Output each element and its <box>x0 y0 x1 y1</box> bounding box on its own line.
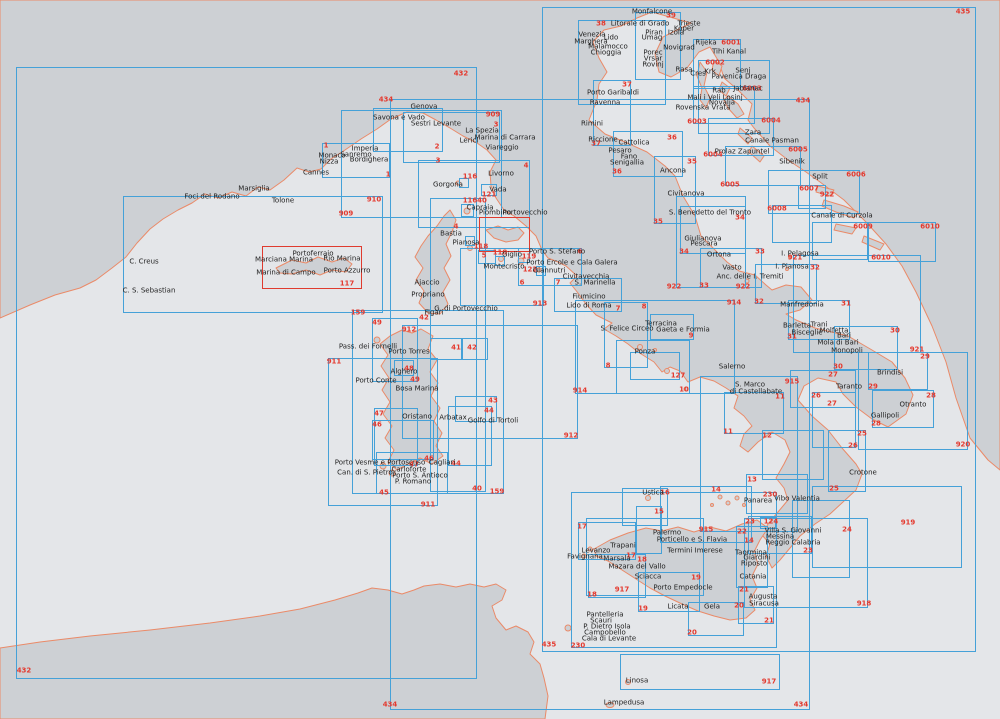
chart-number-117[interactable]: 117 <box>340 281 355 288</box>
place-label: Izola <box>668 30 684 37</box>
chart-number-6008[interactable]: 6008 <box>767 206 786 213</box>
chart-number-1[interactable]: 1 <box>386 172 391 179</box>
chart-number-21[interactable]: 21 <box>764 618 774 625</box>
chart-number-19[interactable]: 19 <box>691 575 701 582</box>
place-label: Rovenska Vrata <box>676 105 731 112</box>
place-label: Zara <box>745 130 761 137</box>
chart-number-915[interactable]: 915 <box>699 527 714 534</box>
place-label: Licata <box>667 604 688 611</box>
place-label: Sibenik <box>779 159 805 166</box>
chart-number-32[interactable]: 32 <box>810 265 820 272</box>
place-label: Sestri Levante <box>411 121 461 128</box>
chart-number-159[interactable]: 159 <box>351 310 366 317</box>
chart-number-42[interactable]: 42 <box>467 345 477 352</box>
place-label: Capraia <box>466 205 493 212</box>
place-label: Ravenna <box>590 100 621 107</box>
place-label: Marsala <box>603 556 630 563</box>
chart-number-18[interactable]: 18 <box>587 592 597 599</box>
place-label: Cattolica <box>619 140 650 147</box>
chart-number-434[interactable]: 434 <box>796 98 811 105</box>
chart-number-911[interactable]: 911 <box>421 502 436 509</box>
place-label: Bordighera <box>350 157 389 164</box>
chart-number-24[interactable]: 24 <box>842 527 852 534</box>
place-label: Trapani <box>610 543 636 550</box>
place-label: Catania <box>740 574 767 581</box>
place-label: Porto Conte <box>355 378 396 385</box>
place-label: Litorale di Grado <box>611 21 669 28</box>
place-label: Bastia <box>440 231 462 238</box>
chart-number-1[interactable]: 1 <box>324 143 329 150</box>
place-label: Vada <box>489 187 506 194</box>
place-label: Ajaccio <box>415 280 440 287</box>
chart-number-230[interactable]: 230 <box>571 643 586 650</box>
place-label: Ortona <box>707 252 731 259</box>
chart-number-914[interactable]: 914 <box>727 300 742 307</box>
chart-number-30[interactable]: 30 <box>890 328 900 335</box>
chart-number-33[interactable]: 33 <box>755 249 765 256</box>
place-label: Panarea <box>744 498 772 505</box>
place-label: Lampedusa <box>604 700 645 707</box>
place-label: Genova <box>411 104 438 111</box>
place-label: Golfo di Tortoli <box>468 418 518 425</box>
chart-number-434[interactable]: 434 <box>794 702 809 709</box>
chart-number-25[interactable]: 25 <box>857 431 867 438</box>
place-label: Rovinj <box>642 62 663 69</box>
place-label: Vasto <box>722 265 741 272</box>
chart-number-14[interactable]: 14 <box>711 487 721 494</box>
place-label: Giannutri <box>533 268 566 275</box>
place-label: Mazara del Vallo <box>608 564 665 571</box>
chart-number-8[interactable]: 8 <box>642 304 647 311</box>
place-label: Gallipoli <box>871 413 899 420</box>
chart-number-912[interactable]: 912 <box>402 327 417 334</box>
chart-number-30[interactable]: 30 <box>833 364 843 371</box>
place-label: S. Felice Circeo <box>600 326 653 333</box>
chart-index-map: 4324324344344344344354359099099109119119… <box>0 0 1000 719</box>
chart-number-922[interactable]: 922 <box>820 192 835 199</box>
place-label: Porto Torres <box>388 349 429 356</box>
place-label: S. Benedetto del Tronto <box>669 210 751 217</box>
place-label: Porto Ercole e Cala Galera <box>526 260 617 267</box>
place-label: Gela <box>704 604 720 611</box>
place-label: Porto Garibaldi <box>587 90 639 97</box>
chart-number-32[interactable]: 32 <box>754 299 764 306</box>
chart-number-41[interactable]: 41 <box>451 345 461 352</box>
chart-number-26[interactable]: 26 <box>848 443 858 450</box>
chart-number-124[interactable]: 124 <box>764 519 779 526</box>
chart-number-28[interactable]: 28 <box>926 393 936 400</box>
place-label: Novigrad <box>663 45 695 52</box>
chart-number-917[interactable]: 917 <box>615 587 630 594</box>
place-label: Oristano <box>402 414 432 421</box>
place-label: Montecristo <box>483 264 524 271</box>
chart-number-6010[interactable]: 6010 <box>920 224 939 231</box>
chart-number-26[interactable]: 26 <box>811 393 821 400</box>
chart-number-34[interactable]: 34 <box>679 249 689 256</box>
place-label: Porto Empedocle <box>653 585 712 592</box>
place-label: Lido di Roma <box>566 303 611 310</box>
place-label: Viareggio <box>485 145 518 152</box>
place-label: Tihi Kanal <box>712 49 746 56</box>
chart-number-21[interactable]: 21 <box>739 587 749 594</box>
place-label: Monopoli <box>831 348 863 355</box>
place-label: Linosa <box>626 678 649 685</box>
place-label: Taranto <box>836 384 862 391</box>
place-label: Bosa Marina <box>395 386 438 393</box>
place-label: Porto Azzurro <box>324 268 371 275</box>
chart-overlay-layer: 4324324344344344344354359099099109119119… <box>0 0 1000 719</box>
place-label: Rijeka <box>695 40 716 47</box>
chart-number-46[interactable]: 46 <box>372 422 382 429</box>
chart-number-911[interactable]: 911 <box>327 359 342 366</box>
place-label: C. S. Sebastian <box>123 288 176 295</box>
chart-number-35[interactable]: 35 <box>687 159 697 166</box>
chart-number-913[interactable]: 913 <box>533 301 548 308</box>
place-label: Split <box>812 174 828 181</box>
place-label: Manfredonia <box>780 302 824 309</box>
chart-number-7[interactable]: 7 <box>556 280 561 287</box>
place-label: Reggio Calabria <box>765 540 820 547</box>
chart-number-922[interactable]: 922 <box>667 284 682 291</box>
chart-number-912[interactable]: 912 <box>564 433 579 440</box>
chart-number-17[interactable]: 17 <box>577 524 587 531</box>
place-label: Gaeta e Formia <box>656 327 710 334</box>
place-label: C. Creus <box>129 259 158 266</box>
chart-number-43[interactable]: 43 <box>488 398 498 405</box>
chart-number-6007[interactable]: 6007 <box>799 186 818 193</box>
chart-number-917[interactable]: 917 <box>762 679 777 686</box>
place-label: Pianosa <box>453 240 480 247</box>
chart-number-27[interactable]: 27 <box>828 372 838 379</box>
place-label: Lido <box>604 35 619 42</box>
place-label: Chioggia <box>591 50 622 57</box>
chart-number-6[interactable]: 6 <box>520 280 525 287</box>
chart-number-29[interactable]: 29 <box>920 354 930 361</box>
chart-number-49[interactable]: 49 <box>372 320 382 327</box>
place-label: Livorno <box>488 171 514 178</box>
chart-number-45[interactable]: 45 <box>379 490 389 497</box>
chart-number-2[interactable]: 2 <box>435 144 440 151</box>
place-label: S. Marinella <box>575 280 616 287</box>
place-label: Canale di Curzola <box>811 213 872 220</box>
chart-number-6009[interactable]: 6009 <box>853 224 872 231</box>
place-label: Riposto <box>741 561 767 568</box>
place-label: I. Pianosa <box>775 264 808 271</box>
chart-number-922[interactable]: 922 <box>736 284 751 291</box>
place-label: Ancona <box>660 168 686 175</box>
place-label: Porticello e S. Flavia <box>657 537 727 544</box>
place-label: Jablanac <box>733 86 763 93</box>
place-label: Anc. delle I. Tremiti <box>717 274 784 281</box>
place-label: Cannes <box>303 170 329 177</box>
place-label: Propriano <box>411 292 444 299</box>
place-label: Salerno <box>719 364 745 371</box>
place-label: Prolaz Zapuntel <box>715 149 770 156</box>
chart-number-435[interactable]: 435 <box>956 9 971 16</box>
place-label: Termini Imerese <box>667 548 723 555</box>
chart-number-9[interactable]: 9 <box>689 333 694 340</box>
place-label: Porto S. Stefano <box>529 249 585 256</box>
place-label: Crotone <box>849 470 877 477</box>
place-label: Rio Marina <box>323 256 360 263</box>
place-label: Alghero <box>391 369 418 376</box>
chart-number-28[interactable]: 28 <box>871 421 881 428</box>
chart-number-33[interactable]: 33 <box>699 283 709 290</box>
place-label: Nizza <box>320 159 339 166</box>
chart-number-35[interactable]: 35 <box>653 219 663 226</box>
place-label: Ustica <box>642 490 664 497</box>
chart-number-6005[interactable]: 6005 <box>720 182 739 189</box>
chart-number-25[interactable]: 25 <box>829 486 839 493</box>
chart-number-36[interactable]: 36 <box>612 169 622 176</box>
chart-number-910[interactable]: 910 <box>367 197 382 204</box>
place-label: di Castellabate <box>730 389 782 396</box>
place-label: Arbatax <box>439 415 467 422</box>
chart-number-23[interactable]: 23 <box>803 548 813 555</box>
place-label: P. Romano <box>395 479 431 486</box>
place-label: Brindisi <box>877 370 903 377</box>
place-label: Giglio <box>502 252 522 259</box>
place-label: Otranto <box>900 402 927 409</box>
chart-number-31[interactable]: 31 <box>841 301 851 308</box>
chart-number-10[interactable]: 10 <box>679 387 689 394</box>
place-label: I. Pelagosa <box>781 251 819 258</box>
place-label: G. di Portovecchio <box>434 306 497 313</box>
place-label: Monfalcone <box>632 9 672 16</box>
place-label: Cala di Levante <box>582 636 636 643</box>
place-label: Foci del Rodano <box>184 194 239 201</box>
chart-number-909[interactable]: 909 <box>339 211 354 218</box>
place-label: Canale Pasman <box>745 138 799 145</box>
place-label: Can. di S. Pietro <box>337 470 393 477</box>
chart-number-19[interactable]: 19 <box>638 606 648 613</box>
chart-number-36[interactable]: 36 <box>667 135 677 142</box>
chart-number-159[interactable]: 159 <box>490 489 505 496</box>
chart-number-434[interactable]: 434 <box>383 702 398 709</box>
place-label: Mola di Bari <box>817 340 858 347</box>
place-label: Gorgona <box>433 182 463 189</box>
chart-number-38[interactable]: 38 <box>596 21 606 28</box>
place-label: Pavenica Draga <box>712 74 767 81</box>
chart-number-6005[interactable]: 6005 <box>788 147 807 154</box>
chart-number-5[interactable]: 5 <box>482 253 487 260</box>
place-label: Bisceglie <box>791 330 822 337</box>
chart-number-13[interactable]: 13 <box>747 477 757 484</box>
chart-number-6006[interactable]: 6006 <box>846 172 865 179</box>
chart-number-27[interactable]: 27 <box>827 401 837 408</box>
chart-number-6003[interactable]: 6003 <box>687 119 706 126</box>
chart-number-6010[interactable]: 6010 <box>871 255 890 262</box>
chart-number-919[interactable]: 919 <box>901 520 916 527</box>
place-label: Marina di Carrara <box>475 135 536 142</box>
place-label: Civitanova <box>667 191 704 198</box>
chart-number-920[interactable]: 920 <box>956 442 971 449</box>
place-label: Umag <box>642 35 663 42</box>
chart-box-917-linosa[interactable] <box>620 654 780 690</box>
chart-number-116[interactable]: 116 <box>463 174 478 181</box>
place-label: Tolone <box>272 198 294 205</box>
chart-number-20[interactable]: 20 <box>734 603 744 610</box>
place-label: Marciana Marina <box>255 257 313 264</box>
chart-number-44[interactable]: 44 <box>484 408 494 415</box>
chart-box-919[interactable] <box>812 486 962 568</box>
place-label: Ponza <box>635 349 656 356</box>
chart-number-432[interactable]: 432 <box>454 71 469 78</box>
chart-number-12[interactable]: 12 <box>762 433 772 440</box>
chart-number-918[interactable]: 918 <box>857 601 872 608</box>
chart-number-3[interactable]: 3 <box>436 158 441 165</box>
chart-number-909[interactable]: 909 <box>486 112 501 119</box>
chart-number-4[interactable]: 4 <box>524 163 529 170</box>
place-label: Marina di Campo <box>256 270 315 277</box>
place-label: Rimini <box>581 121 603 128</box>
chart-number-435[interactable]: 435 <box>542 642 557 649</box>
chart-number-915[interactable]: 915 <box>785 379 800 386</box>
place-label: Cagliari <box>429 460 456 467</box>
chart-number-15[interactable]: 15 <box>654 509 664 516</box>
chart-number-37[interactable]: 37 <box>622 82 632 89</box>
chart-number-434[interactable]: 434 <box>379 97 394 104</box>
chart-number-127[interactable]: 127 <box>671 373 686 380</box>
place-label: Pescara <box>690 241 717 248</box>
place-label: Favignana <box>567 554 603 561</box>
chart-number-914[interactable]: 914 <box>573 388 588 395</box>
chart-number-432[interactable]: 432 <box>17 668 32 675</box>
chart-number-8[interactable]: 8 <box>606 363 611 370</box>
place-label: Riccione <box>588 137 617 144</box>
chart-number-47[interactable]: 47 <box>374 411 384 418</box>
chart-number-6002[interactable]: 6002 <box>705 60 724 67</box>
chart-number-14[interactable]: 14 <box>744 538 754 545</box>
place-label: Senigallia <box>610 160 644 167</box>
chart-number-29[interactable]: 29 <box>868 384 878 391</box>
chart-number-40[interactable]: 40 <box>472 486 482 493</box>
chart-number-7[interactable]: 7 <box>616 306 621 313</box>
chart-number-6001[interactable]: 6001 <box>721 40 740 47</box>
chart-number-23[interactable]: 23 <box>745 519 755 526</box>
chart-number-49[interactable]: 49 <box>410 377 420 384</box>
place-label: Fiumicino <box>572 294 605 301</box>
place-label: Marsiglia <box>238 186 269 193</box>
place-label: Vibo Valentia <box>774 496 820 503</box>
chart-number-6004[interactable]: 6004 <box>761 118 780 125</box>
chart-number-22[interactable]: 22 <box>737 529 747 536</box>
chart-number-11[interactable]: 11 <box>723 429 733 436</box>
place-label: Siracusa <box>749 601 779 608</box>
place-label: Portovecchio <box>503 210 548 217</box>
chart-number-20[interactable]: 20 <box>687 630 697 637</box>
place-label: Sciacca <box>635 574 662 581</box>
